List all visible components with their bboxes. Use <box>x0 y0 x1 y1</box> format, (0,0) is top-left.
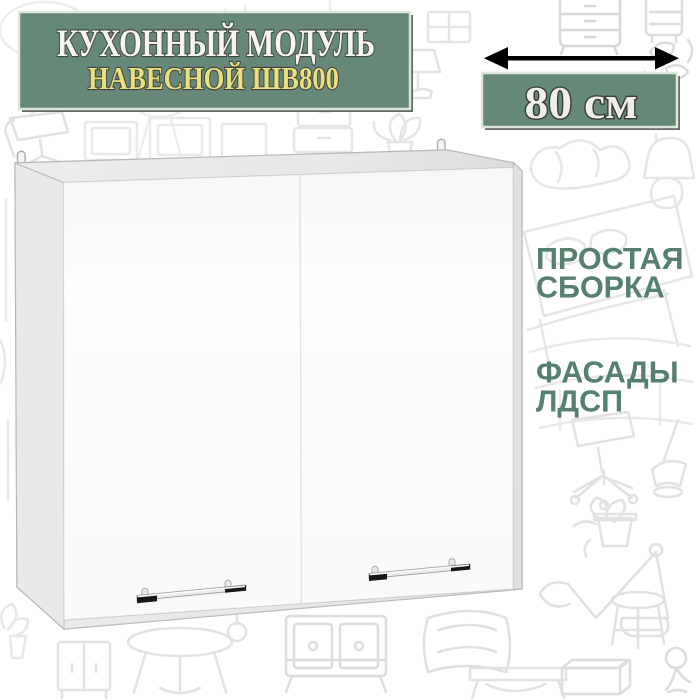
svg-text:ЛДСП: ЛДСП <box>536 385 623 419</box>
svg-text:СБОРКА: СБОРКА <box>536 271 665 305</box>
svg-text:80 см: 80 см <box>525 77 638 128</box>
svg-text:КУХОННЫЙ МОДУЛЬ: КУХОННЫЙ МОДУЛЬ <box>57 21 375 65</box>
svg-text:НАВЕСНОЙ ШВ800: НАВЕСНОЙ ШВ800 <box>88 60 339 96</box>
